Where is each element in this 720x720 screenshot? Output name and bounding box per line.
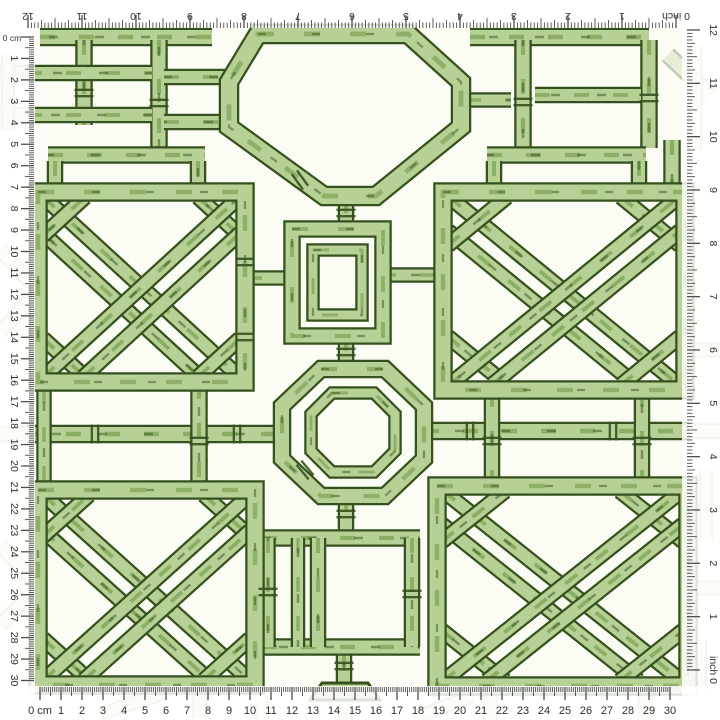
ruler-number: 8	[205, 705, 211, 717]
ruler-strips	[0, 0, 720, 720]
ruler-number: 10	[130, 10, 142, 22]
fabric-swatch: 0 inch123456789101112inch 01234567891011…	[0, 0, 720, 720]
ruler-number: 2	[8, 77, 20, 83]
ruler-number: 20	[454, 705, 466, 717]
ruler-number: 3	[707, 507, 719, 513]
ruler-number: 6	[349, 10, 355, 22]
ruler-number: 7	[707, 294, 719, 300]
ruler-number: 27	[8, 610, 20, 622]
ruler-number: 26	[8, 589, 20, 601]
ruler-number: 6	[707, 347, 719, 353]
ruler-number: 13	[8, 310, 20, 322]
ruler-number: 15	[8, 353, 20, 365]
ruler-number: 12	[286, 705, 298, 717]
ruler-number: 5	[142, 705, 148, 717]
ruler-number: 17	[8, 396, 20, 408]
ruler-number: 1	[619, 10, 625, 22]
ruler-number: 10	[8, 246, 20, 258]
ruler-number: 18	[412, 705, 424, 717]
ruler-number: 6	[163, 705, 169, 717]
ruler-number: 1	[8, 56, 20, 62]
ruler-number: 9	[707, 187, 719, 193]
ruler-number: 17	[391, 705, 403, 717]
ruler-number: 28	[622, 705, 634, 717]
ruler-number: 4	[121, 705, 127, 717]
ruler-number: 0 cm	[28, 705, 52, 717]
ruler-number: 10	[244, 705, 256, 717]
ruler-number: 3	[100, 705, 106, 717]
ruler-number: 24	[538, 705, 550, 717]
ruler-number: 19	[433, 705, 445, 717]
ruler-number: 7	[8, 184, 20, 190]
ruler-number: 26	[580, 705, 592, 717]
ruler-number: 25	[8, 567, 20, 579]
ruler-number: 4	[8, 120, 20, 126]
ruler-number: 18	[8, 417, 20, 429]
ruler-number: 28	[8, 632, 20, 644]
ruler-number: 7	[295, 10, 301, 22]
ruler-number: 19	[8, 439, 20, 451]
ruler-number: 11	[707, 78, 719, 89]
ruler-number: 21	[475, 705, 487, 717]
ruler-number: 10	[707, 131, 719, 143]
ruler-number: 29	[8, 653, 20, 665]
ruler-number: 24	[8, 546, 20, 558]
ruler-number: 16	[370, 705, 382, 717]
ruler-number: 12	[8, 289, 20, 301]
ruler-number: 9	[8, 227, 20, 233]
ruler-number: 14	[8, 331, 20, 343]
ruler-number: 2	[565, 10, 571, 22]
ruler-overlay: 0 inch123456789101112inch 01234567891011…	[0, 0, 720, 720]
ruler-number: 12	[707, 24, 719, 36]
ruler-number: 4	[707, 454, 719, 460]
ruler-number: 23	[8, 525, 20, 537]
ruler-number: 0 inch	[662, 10, 690, 22]
ruler-number: 8	[8, 206, 20, 212]
ruler-number: 29	[643, 705, 655, 717]
ruler-number: 16	[8, 374, 20, 386]
ruler-number: 0 cm	[3, 33, 21, 43]
ruler-number: 3	[511, 10, 517, 22]
ruler-number: 25	[559, 705, 571, 717]
ruler-number: 11	[8, 267, 20, 278]
ruler-number: 15	[349, 705, 361, 717]
ruler-number: 27	[601, 705, 613, 717]
ruler-number: 23	[517, 705, 529, 717]
ruler-number: 2	[707, 560, 719, 566]
ruler-number: 30	[8, 675, 20, 687]
ruler-number: 14	[328, 705, 340, 717]
ruler-number: 22	[8, 503, 20, 515]
ruler-number: 11	[76, 10, 87, 22]
ruler-number: 8	[707, 240, 719, 246]
ruler-number: 6	[8, 163, 20, 169]
ruler-number: 20	[8, 460, 20, 472]
ruler-number: inch 0	[707, 656, 719, 684]
ruler-number: 5	[403, 10, 409, 22]
ruler-number: 9	[226, 705, 232, 717]
ruler-number: 1	[58, 705, 64, 717]
ruler-bottom-labels: 0 cm123456789101112131415161718192021222…	[28, 705, 676, 717]
ruler-number: 8	[241, 10, 247, 22]
ruler-number: 22	[496, 705, 508, 717]
ruler-number: 5	[707, 400, 719, 406]
ruler-number: 2	[79, 705, 85, 717]
ruler-number: 3	[8, 98, 20, 104]
ruler-number: 12	[22, 10, 34, 22]
ruler-number: 4	[457, 10, 463, 22]
ruler-number: 1	[707, 614, 719, 620]
ruler-number: 7	[184, 705, 190, 717]
ruler-number: 9	[187, 10, 193, 22]
ruler-number: 21	[8, 482, 20, 494]
ruler-number: 30	[664, 705, 676, 717]
ruler-number: 11	[265, 705, 276, 717]
ruler-number: 5	[8, 141, 20, 147]
ruler-number: 13	[307, 705, 319, 717]
